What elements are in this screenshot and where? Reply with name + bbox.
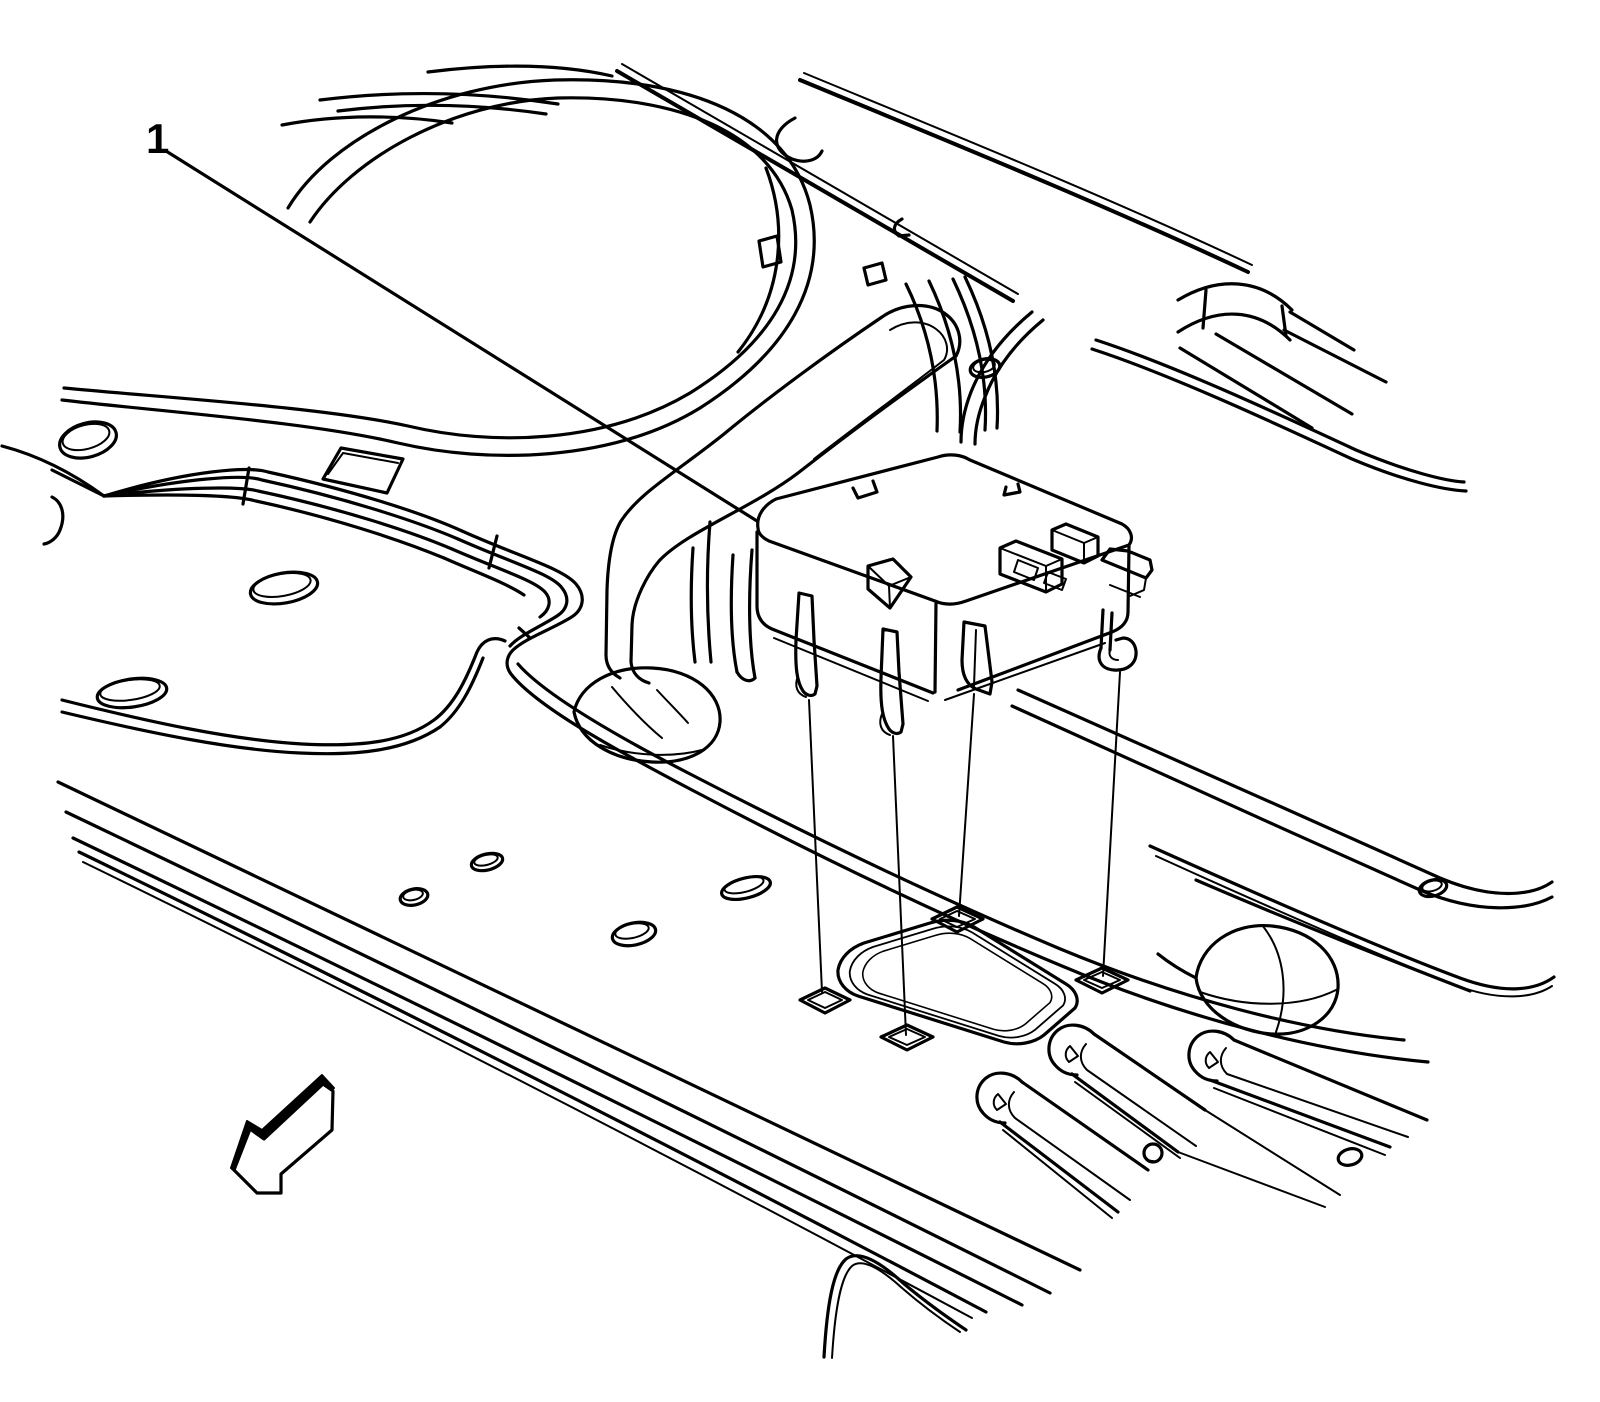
rocker-sill-lines (58, 782, 1080, 1358)
side-rail-lower (1012, 690, 1554, 1034)
mounting-holes (800, 672, 1128, 1050)
callout-1-label: 1 (146, 118, 169, 160)
module-component (757, 455, 1152, 735)
stamped-slot-upper (606, 306, 960, 683)
front-direction-arrow-icon (231, 1075, 334, 1193)
side-rail-corner (906, 277, 1466, 491)
panel-small-holes (399, 850, 773, 949)
illustration-page: 1 (0, 0, 1600, 1402)
floor-tunnel-ribs (62, 531, 1428, 1062)
panel-line-art (0, 0, 1600, 1402)
left-crossmember (2, 416, 462, 712)
roof-opening-ring (62, 66, 814, 455)
roof-edge-lines (617, 64, 1252, 380)
callout-1-leader-line (166, 151, 757, 521)
